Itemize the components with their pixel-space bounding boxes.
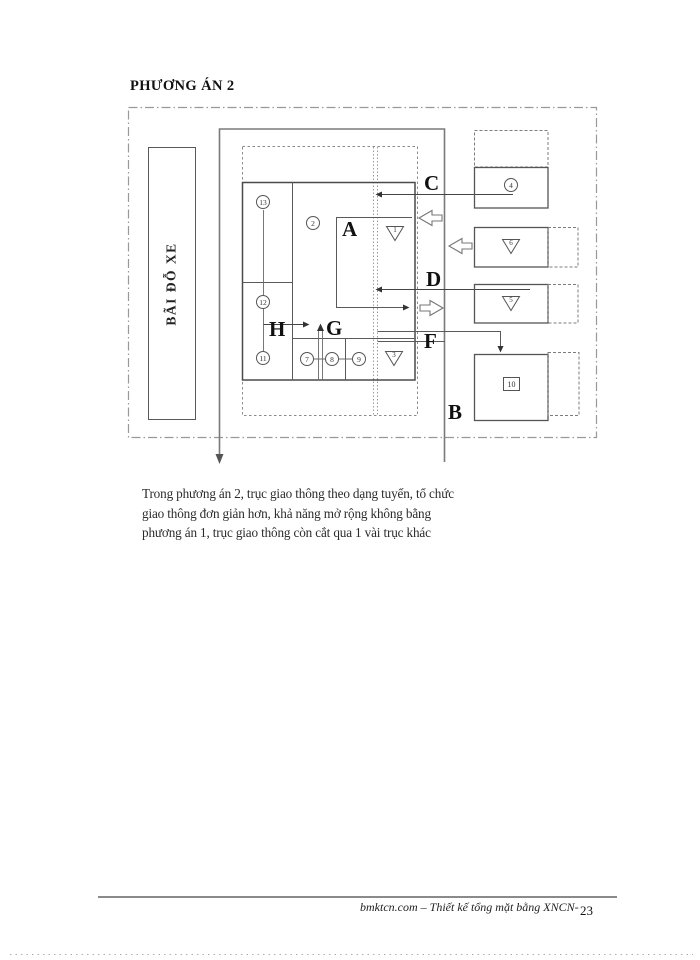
unit-circle-2: 2 — [306, 216, 320, 230]
paragraph-line: phương án 1, trục giao thông còn cắt qua… — [142, 523, 454, 543]
footer-page-number: 23 — [580, 903, 593, 919]
expansion-boundary — [243, 147, 418, 416]
hollow-arrow-left-icon — [449, 239, 472, 254]
letter-marker-c: C — [424, 173, 439, 194]
site-outer-boundary — [129, 108, 597, 438]
letter-marker-h: H — [269, 319, 285, 340]
unit-circle-8: 8 — [325, 352, 339, 366]
triangle-symbol-5: 5 — [501, 295, 521, 312]
page-title: PHƯƠNG ÁN 2 — [130, 78, 235, 95]
site-plan-drawing — [0, 0, 700, 960]
triangle-symbol-3: 3 — [384, 350, 404, 367]
building-5-extension — [548, 285, 578, 324]
building-6-extension — [548, 228, 578, 268]
parking-lot-box: BÃI ĐỖ XE — [148, 147, 196, 420]
unit-circle-13: 13 — [256, 195, 270, 209]
document-page: PHƯƠNG ÁN 2 BÃI ĐỖ XE A B C D F G H 13 1… — [0, 0, 700, 960]
triangle-symbol-1: 1 — [385, 225, 405, 242]
letter-marker-b: B — [448, 402, 462, 423]
unit-circle-11: 11 — [256, 351, 270, 365]
description-paragraph: Trong phương án 2, trục giao thông theo … — [142, 484, 454, 543]
external-buildings — [475, 131, 580, 421]
unit-circle-12: 12 — [256, 295, 270, 309]
unit-circle-9: 9 — [352, 352, 366, 366]
unit-square-10: 10 — [503, 377, 520, 391]
letter-marker-g: G — [326, 318, 342, 339]
road-exit-arrowhead — [216, 454, 224, 464]
flow-line-g — [317, 324, 324, 381]
perimeter-road — [216, 129, 445, 464]
footer-source: bmktcn.com – Thiết kế tổng mặt bằng XNCN… — [360, 900, 579, 915]
dashed-box-above-4 — [475, 131, 549, 168]
hollow-arrow-right-icon — [420, 301, 443, 316]
letter-marker-d: D — [426, 269, 441, 290]
triangle-symbol-6: 6 — [501, 238, 521, 255]
letter-marker-a: A — [342, 219, 357, 240]
paragraph-line: giao thông đơn giản hơn, khả năng mở rộn… — [142, 504, 454, 524]
letter-marker-f: F — [424, 331, 437, 352]
paragraph-line: Trong phương án 2, trục giao thông theo … — [142, 484, 454, 504]
internal-axis-road — [374, 147, 378, 415]
parking-lot-label: BÃI ĐỖ XE — [164, 242, 180, 325]
unit-circle-7: 7 — [300, 352, 314, 366]
unit-circle-4: 4 — [504, 178, 518, 192]
flow-line-d — [376, 287, 531, 293]
building-10-extension — [548, 353, 579, 416]
hollow-arrow-left-icon — [419, 211, 442, 226]
